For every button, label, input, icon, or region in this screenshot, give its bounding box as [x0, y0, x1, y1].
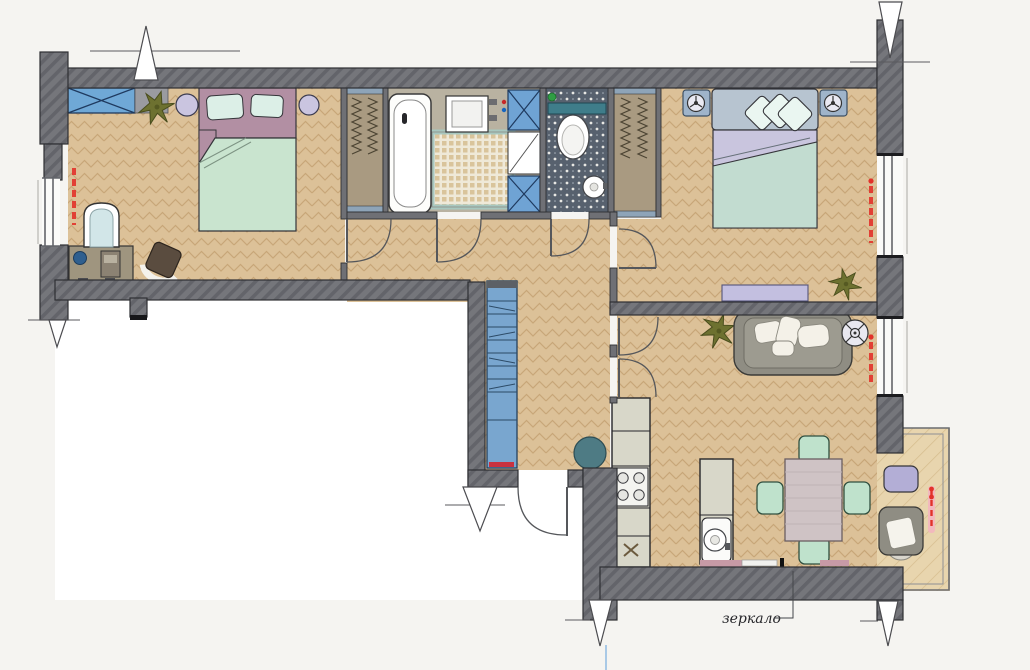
nightstand-with-lamp: [683, 90, 710, 116]
pouf: [884, 466, 918, 492]
closet-left: [347, 88, 383, 212]
tap-icon: [489, 99, 497, 105]
nightstand-with-lamp: [820, 90, 847, 116]
wall-stairwell: [468, 282, 485, 490]
valve-icon: [502, 100, 506, 104]
wall-bath-block: [481, 212, 551, 219]
wall-panel: [742, 560, 777, 566]
wall-bath-block: [589, 212, 612, 219]
wall-bedroom1-hall: [341, 88, 347, 219]
wall-bedroom2-living: [610, 302, 877, 315]
cushion: [885, 517, 916, 550]
bathtub: [389, 94, 431, 213]
wall-east: [877, 396, 903, 453]
floor-plan-svg: зеркало: [0, 0, 1030, 670]
double-bed-1: [199, 88, 296, 231]
desk-device: [101, 251, 120, 277]
sofa: [734, 309, 852, 375]
ceiling-fan-icon: [842, 320, 868, 346]
wall-wc-closet: [608, 88, 614, 212]
bathroom: [389, 90, 540, 213]
wall-entrance: [468, 470, 518, 487]
wall-pier: [130, 298, 147, 317]
washing-machine: [702, 518, 731, 562]
wall-east: [877, 257, 903, 318]
cushion: [797, 323, 830, 348]
wall-stub: [610, 397, 617, 403]
mirror-label: зеркало: [722, 611, 781, 627]
table-lamp-icon: [74, 252, 87, 265]
blanket: [199, 138, 296, 231]
cushion: [772, 341, 794, 356]
wall-door-post: [610, 345, 617, 357]
floor-plan-image: зеркало: [0, 0, 1030, 670]
closet-right: [614, 88, 656, 217]
wall-closet-bath: [383, 88, 388, 212]
round-bedside-table: [176, 94, 198, 116]
dining-table: [785, 459, 842, 541]
bedroom-2-nook-floor: [617, 219, 661, 302]
blue-shelving-unit: [487, 281, 517, 468]
wall-hall-nook: [610, 212, 617, 226]
pillow: [206, 94, 244, 120]
mosaic-mat: [432, 132, 513, 207]
wall-west: [44, 144, 62, 180]
dressing-table: [69, 246, 133, 282]
wall-north: [55, 68, 877, 88]
wall-bath-block: [347, 212, 437, 219]
bench: [722, 285, 808, 301]
wall-mirror: [820, 560, 849, 566]
pillow: [250, 94, 283, 118]
wall-mirror: [700, 560, 742, 567]
ventilation-shaft: [502, 90, 540, 212]
double-bed-2: [712, 89, 818, 228]
wall-closet-bedroom2: [656, 88, 661, 217]
toilet: [557, 115, 589, 159]
armchair: [879, 507, 923, 560]
wall-south-left: [55, 280, 470, 300]
hallway: [487, 281, 517, 468]
wall-bedroom1-hall: [341, 263, 347, 282]
stove: [614, 468, 648, 506]
wall-south: [600, 567, 903, 600]
dining-chair: [757, 482, 783, 514]
wc-shelf: [548, 103, 606, 114]
dining-chair: [844, 482, 870, 514]
wall-entrance: [568, 470, 583, 487]
doormat: [489, 462, 514, 467]
air-freshener-icon: [548, 93, 556, 101]
window-living: [877, 316, 907, 397]
arched-mirror: [84, 203, 119, 247]
tap-icon: [489, 115, 497, 121]
round-bedside-table: [299, 95, 319, 115]
wall-bath-wc: [540, 88, 546, 212]
wall-west: [40, 52, 68, 144]
wall-pier-cap: [130, 315, 147, 320]
window-bedroom2: [877, 153, 907, 258]
round-table: [574, 437, 606, 469]
kitchen-counter: [612, 398, 650, 567]
valve-icon: [502, 108, 506, 112]
